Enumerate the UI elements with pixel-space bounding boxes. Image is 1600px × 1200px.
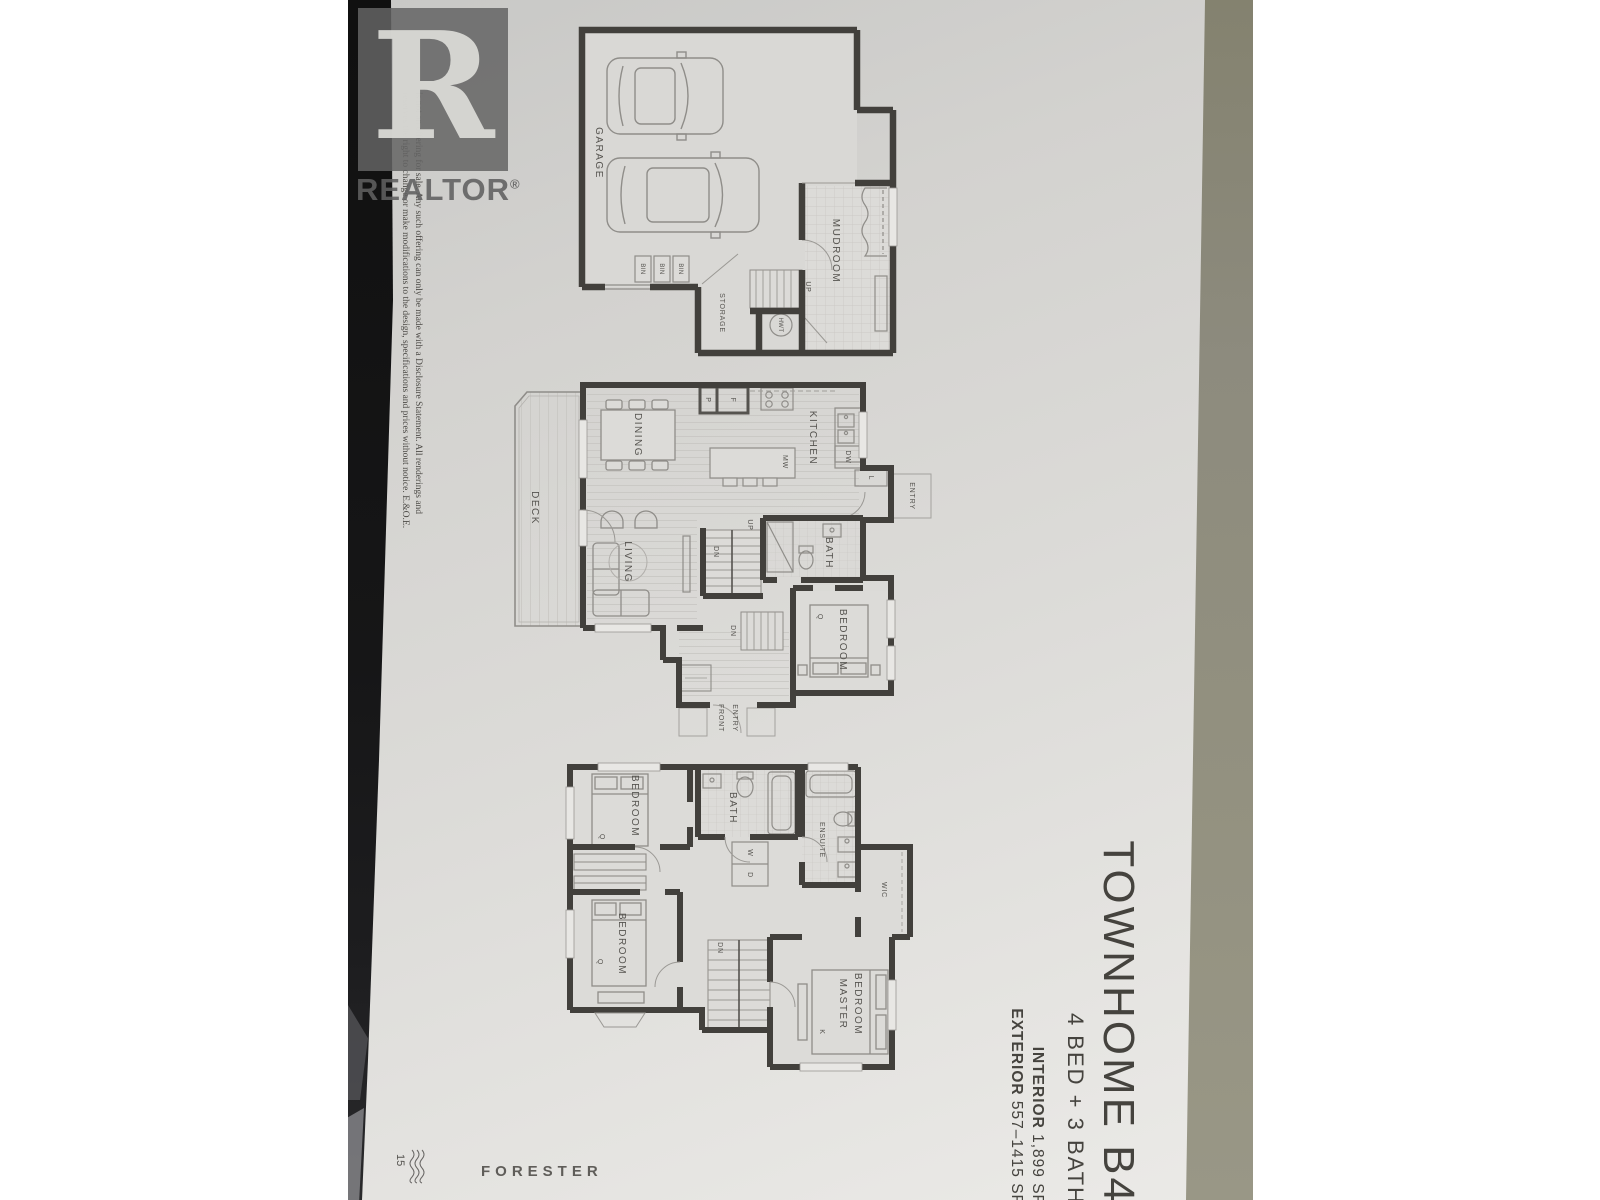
room-label-bin3: BIN [677,263,683,274]
stairs-up [750,270,802,308]
page: { "photo": { "watermark": { "logo_letter… [0,0,1600,1200]
label-dn-lower: DN [729,625,736,637]
label-dishwasher: DW [844,450,851,463]
stairs-dn [741,612,783,650]
living-floor [587,518,697,624]
registered-icon: ® [510,177,521,192]
page-number-wrap: 15 [392,1154,406,1178]
floorplan-garage-level: BIN BIN BIN UP HWT [555,8,920,363]
realtor-watermark-label: REALTOR® [356,172,556,208]
room-label-deck: DECK [529,491,540,525]
room-label-mudroom: MUDROOM [830,219,841,283]
room-label-bedroom-top: BEDROOM [629,775,640,837]
room-label-kitchen: KITCHEN [807,411,818,465]
brand-logo: FORESTER [481,1163,603,1180]
room-label-storage: STORAGE [718,293,725,333]
label-washer: W [746,849,753,856]
room-label-bedroom: BEDROOM [837,609,848,671]
mudroom-tile [805,186,891,351]
front-porch [679,705,775,736]
room-label-bath: BATH [727,792,738,824]
title-block: TOWNHOME B4 4 BED + 3 BATH INTERIOR 1,89… [980,783,1142,1200]
plan-configuration: 4 BED + 3 BATH [1060,783,1090,1200]
label-front-entry-2: ENTRY [731,704,738,732]
interior-area: INTERIOR 1,899 SF [1027,783,1048,1200]
label-master-bed-size: K [818,1029,825,1034]
label-dn: DN [716,942,723,954]
exterior-area: EXTERIOR 557–1415 SF [1006,783,1027,1200]
room-label-master-2: BEDROOM [852,973,863,1035]
label-microwave: MW [781,455,788,469]
bay-window [595,1013,645,1027]
floorplan-photo: is not an offering for sale. Any such of… [348,0,1253,1200]
label-bed-bottom-size: Q [596,959,603,965]
plan-name: TOWNHOME B4 [1094,783,1142,1200]
room-label-wic: WIC [880,882,887,898]
room-label-bin1: BIN [639,263,645,274]
room-label-bin2: BIN [658,263,664,274]
label-hwt: HWT [777,318,783,333]
wave-logo-icon [408,1148,426,1184]
label-linen: L [867,476,874,481]
floorplan-main-level: DECK DINING P F [495,360,935,750]
room-label-ensuite: ENSUITE [818,822,825,858]
window [889,188,897,246]
stairs-up-dn [703,530,761,594]
label-front-entry-1: FRONT [717,704,724,732]
label-bed-top-size: Q [598,834,605,840]
realtor-watermark: R [358,8,508,171]
label-dryer: D [746,872,753,878]
label-dn-upper: DN [712,546,719,558]
page-number: 15 [392,1154,406,1178]
deck [515,392,583,626]
label-up: UP [746,519,753,530]
realtor-r-icon: R [372,12,495,160]
room-label-dining: DINING [632,413,643,457]
room-label-living: LIVING [622,541,633,583]
floorplan-upper-level: Q BEDROOM BATH W D ENSUITE WIC [540,742,935,1127]
label-bed-size-q: Q [816,614,823,620]
label-fridge: F [729,397,736,402]
room-label-garage: GARAGE [593,127,604,179]
room-label-entry: ENTRY [908,482,915,510]
master-floor [770,937,892,1067]
label-pantry: P [704,397,711,402]
room-label-bath: BATH [823,537,834,569]
room-label-master-1: MASTER [837,979,848,1030]
room-label-bedroom-bottom: BEDROOM [616,913,627,975]
